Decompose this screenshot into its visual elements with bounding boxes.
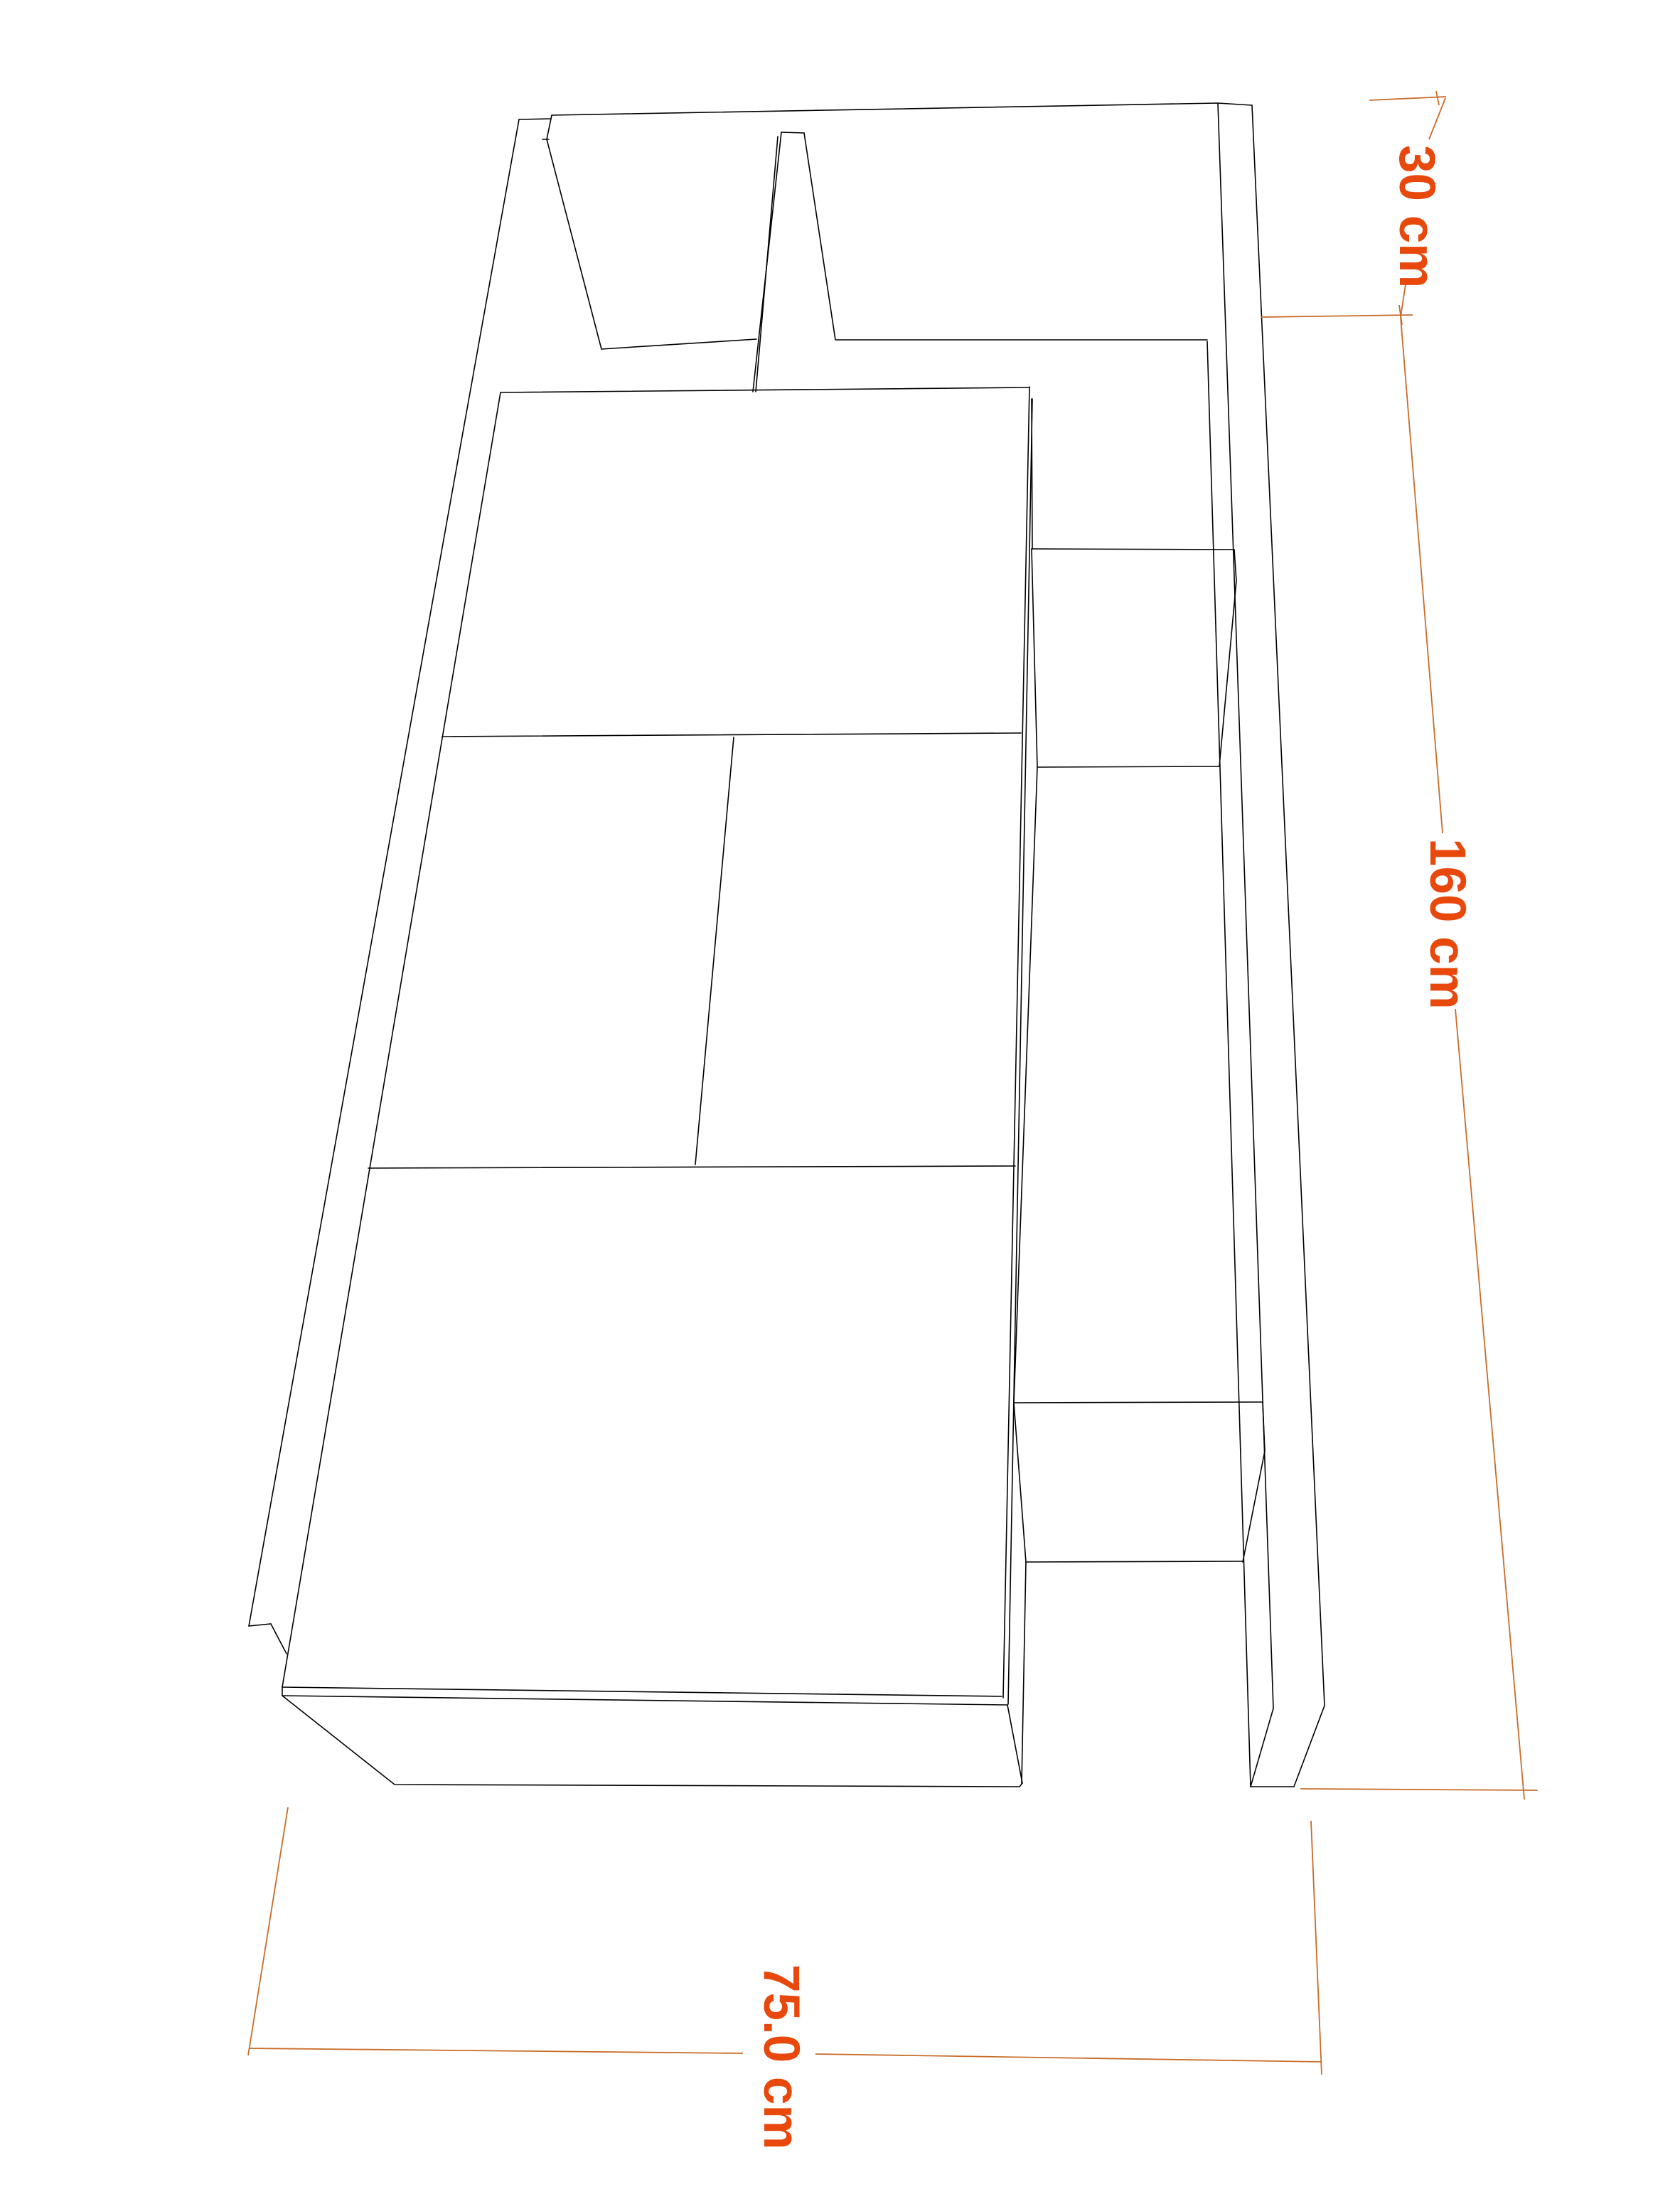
svg-text:30 cm: 30 cm	[1389, 145, 1445, 288]
svg-text:160 cm: 160 cm	[1419, 838, 1475, 1010]
svg-text:75.0 cm: 75.0 cm	[753, 1964, 809, 2150]
